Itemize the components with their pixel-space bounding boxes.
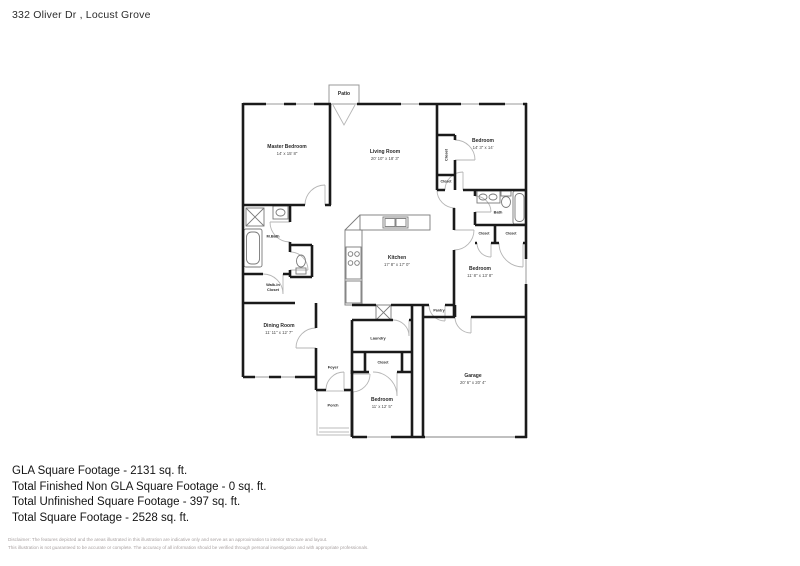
room-name: Porch — [327, 402, 338, 407]
room-dims: 14' 3" x 14' — [472, 144, 494, 150]
room-name: Master Bedroom — [267, 144, 306, 151]
room-name: Foyer — [328, 364, 339, 369]
room-label-walk-in-closet: Walk-In Closet — [260, 282, 286, 292]
room-label-closet-right-1: Closet — [479, 232, 490, 237]
room-dims: 20' 6" x 20' 4" — [460, 379, 486, 385]
disclaimer-line-1: Disclaimer: The features depicted and th… — [8, 536, 368, 544]
summary-line-total: Total Square Footage - 2528 sq. ft. — [12, 511, 266, 527]
room-label-bedroom-top-right: Bedroom 14' 3" x 14' — [472, 138, 494, 150]
summary-line-unfinished: Total Unfinished Square Footage - 397 sq… — [12, 495, 266, 511]
room-label-kitchen: Kitchen 17' 8" x 17' 0" — [384, 255, 410, 267]
room-name: Closet — [479, 232, 490, 237]
room-dims: 11' 11" x 12' 7" — [263, 329, 294, 335]
room-label-master-bedroom: Master Bedroom 14' x 15' 8" — [267, 144, 306, 156]
room-label-bedroom-bottom: Bedroom 11' x 12' 5" — [371, 397, 393, 409]
room-name: Closet — [506, 232, 517, 237]
summary-line-gla: GLA Square Footage - 2131 sq. ft. — [12, 464, 266, 480]
room-label-pantry: Pantry — [433, 309, 444, 314]
square-footage-summary: GLA Square Footage - 2131 sq. ft. Total … — [12, 464, 266, 526]
room-label-garage: Garage 20' 6" x 20' 4" — [460, 373, 486, 385]
room-label-m-bath: M.Bath — [267, 233, 280, 238]
room-label-closet-top-right-small: Closet — [441, 180, 452, 185]
room-label-closet-bottom: Closet — [378, 361, 389, 366]
room-name: Dining Room — [263, 323, 294, 330]
room-name: Closet — [443, 149, 448, 161]
room-label-closet-right-2: Closet — [506, 232, 517, 237]
room-name: Living Room — [370, 149, 400, 156]
room-label-bedroom-right: Bedroom 11' 8" x 13' 8" — [467, 266, 493, 278]
summary-line-non-gla: Total Finished Non GLA Square Footage - … — [12, 480, 266, 496]
room-dims: 20' 10" x 18' 3" — [370, 155, 400, 161]
page-title: 332 Oliver Dr , Locust Grove — [12, 9, 151, 21]
room-label-porch: Porch — [327, 402, 338, 407]
room-name: Pantry — [433, 309, 444, 314]
room-name: Closet — [441, 180, 452, 185]
room-name: Bedroom — [472, 138, 494, 145]
room-name: Patio — [338, 91, 350, 98]
porch-outline — [317, 391, 351, 435]
room-name: Bedroom — [467, 266, 493, 273]
room-name: Bath — [494, 209, 503, 214]
room-label-patio: Patio — [338, 91, 350, 98]
room-dims: 11' x 12' 5" — [371, 403, 393, 409]
room-name: M.Bath — [267, 233, 280, 238]
disclaimer-line-2: This illustration is not guaranteed to b… — [8, 544, 368, 552]
room-name: Bedroom — [371, 397, 393, 404]
room-name: Kitchen — [384, 255, 410, 262]
room-label-living-room: Living Room 20' 10" x 18' 3" — [370, 149, 400, 161]
room-label-laundry: Laundry — [370, 335, 385, 340]
room-label-closet-top-right: Closet — [443, 149, 448, 161]
room-dims: 14' x 15' 8" — [267, 150, 306, 156]
room-label-foyer: Foyer — [328, 364, 339, 369]
floorplan: Patio Master Bedroom 14' x 15' 8" Living… — [233, 84, 533, 446]
room-label-bath: Bath — [494, 209, 503, 214]
room-dims: 11' 8" x 13' 8" — [467, 272, 493, 278]
disclaimer: Disclaimer: The features depicted and th… — [8, 536, 368, 551]
room-name: Walk-In Closet — [260, 282, 286, 292]
room-name: Laundry — [370, 335, 385, 340]
floorplan-page: 332 Oliver Dr , Locust Grove — [0, 0, 800, 566]
room-dims: 17' 8" x 17' 0" — [384, 261, 410, 267]
room-name: Closet — [378, 361, 389, 366]
room-label-dining-room: Dining Room 11' 11" x 12' 7" — [263, 323, 294, 335]
